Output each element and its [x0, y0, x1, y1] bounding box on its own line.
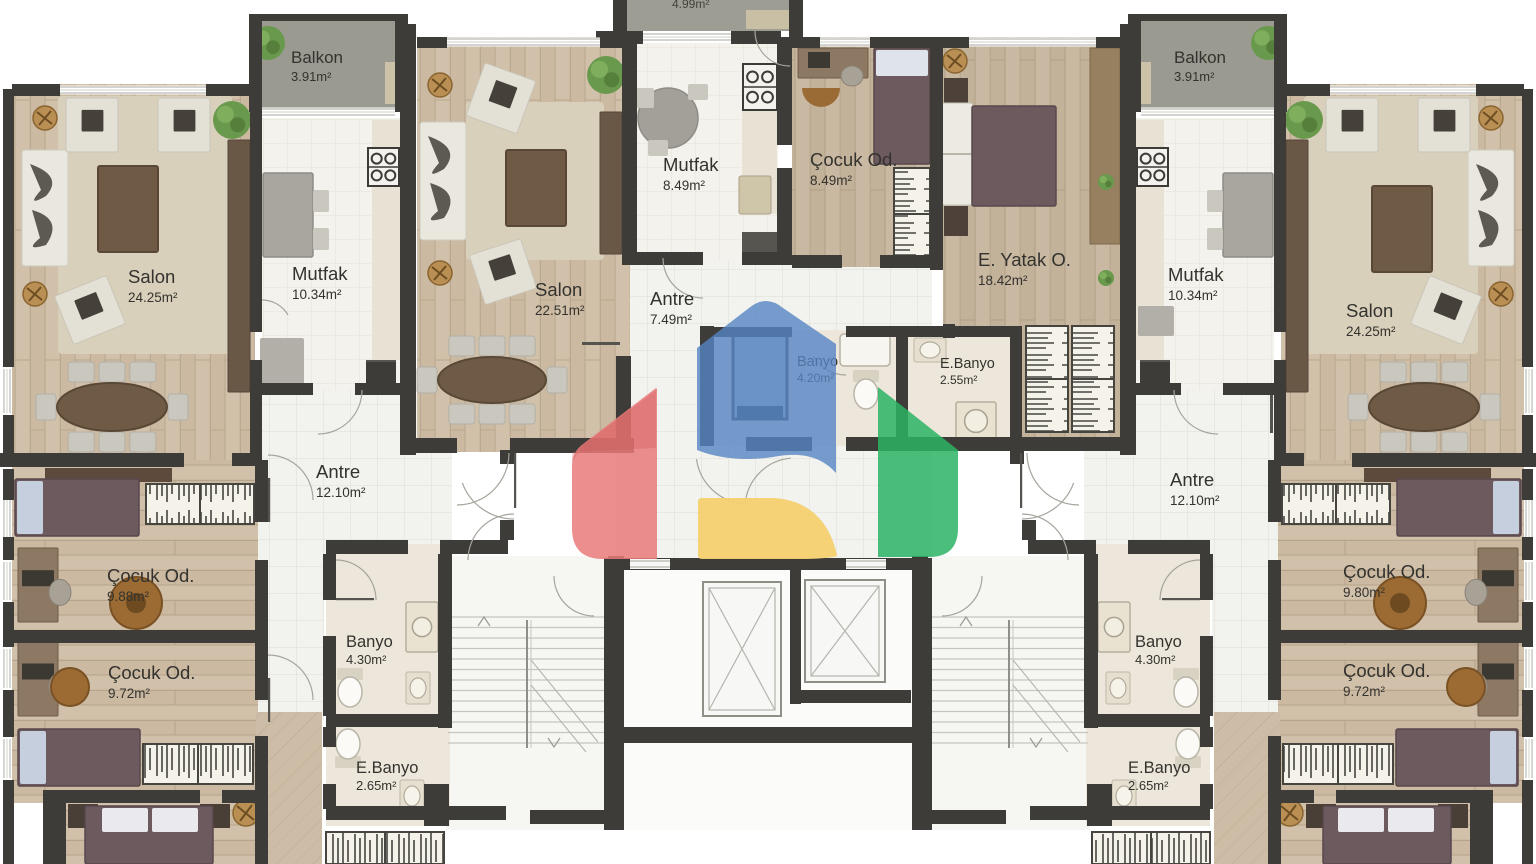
svg-text:22.51m²: 22.51m²	[535, 303, 585, 318]
svg-text:E. Yatak O.: E. Yatak O.	[978, 249, 1071, 270]
svg-text:Banyo: Banyo	[1135, 633, 1182, 651]
svg-text:Çocuk Od.: Çocuk Od.	[1343, 561, 1430, 582]
svg-text:Salon: Salon	[1346, 300, 1393, 321]
svg-text:10.34m²: 10.34m²	[1168, 288, 1218, 303]
svg-text:Mutfak: Mutfak	[1168, 264, 1224, 285]
svg-text:Antre: Antre	[316, 461, 360, 482]
svg-text:9.72m²: 9.72m²	[108, 686, 151, 701]
svg-text:8.49m²: 8.49m²	[810, 173, 853, 188]
svg-text:Antre: Antre	[1170, 469, 1214, 490]
svg-text:E.Banyo: E.Banyo	[1128, 759, 1190, 777]
svg-text:Mutfak: Mutfak	[663, 154, 719, 175]
svg-text:4.99m²: 4.99m²	[672, 0, 709, 11]
svg-text:Çocuk Od.: Çocuk Od.	[107, 565, 194, 586]
svg-text:Salon: Salon	[128, 266, 175, 287]
svg-text:18.42m²: 18.42m²	[978, 273, 1028, 288]
svg-text:24.25m²: 24.25m²	[128, 290, 178, 305]
svg-text:9.88m²: 9.88m²	[107, 589, 150, 604]
svg-text:Mutfak: Mutfak	[292, 263, 348, 284]
svg-text:Çocuk Od.: Çocuk Od.	[810, 149, 897, 170]
svg-text:10.34m²: 10.34m²	[292, 287, 342, 302]
svg-text:Antre: Antre	[650, 288, 694, 309]
svg-text:3.91m²: 3.91m²	[1174, 69, 1215, 84]
svg-text:Balkon: Balkon	[1174, 48, 1226, 67]
svg-text:Salon: Salon	[535, 279, 582, 300]
svg-text:9.80m²: 9.80m²	[1343, 585, 1386, 600]
svg-text:3.91m²: 3.91m²	[291, 69, 332, 84]
svg-text:E.Banyo: E.Banyo	[356, 759, 418, 777]
svg-text:7.49m²: 7.49m²	[650, 312, 693, 327]
svg-text:Çocuk Od.: Çocuk Od.	[1343, 660, 1430, 681]
svg-text:12.10m²: 12.10m²	[1170, 493, 1220, 508]
svg-text:Çocuk Od.: Çocuk Od.	[108, 662, 195, 683]
svg-text:8.49m²: 8.49m²	[663, 178, 706, 193]
svg-text:4.30m²: 4.30m²	[346, 652, 387, 667]
svg-text:2.65m²: 2.65m²	[1128, 778, 1169, 793]
svg-text:4.30m²: 4.30m²	[1135, 652, 1176, 667]
svg-text:E.Banyo: E.Banyo	[940, 356, 995, 372]
svg-text:9.72m²: 9.72m²	[1343, 684, 1386, 699]
svg-text:Banyo: Banyo	[346, 633, 393, 651]
svg-text:Balkon: Balkon	[291, 48, 343, 67]
svg-text:12.10m²: 12.10m²	[316, 485, 366, 500]
svg-text:24.25m²: 24.25m²	[1346, 324, 1396, 339]
svg-text:2.55m²: 2.55m²	[940, 373, 977, 387]
svg-text:2.65m²: 2.65m²	[356, 778, 397, 793]
